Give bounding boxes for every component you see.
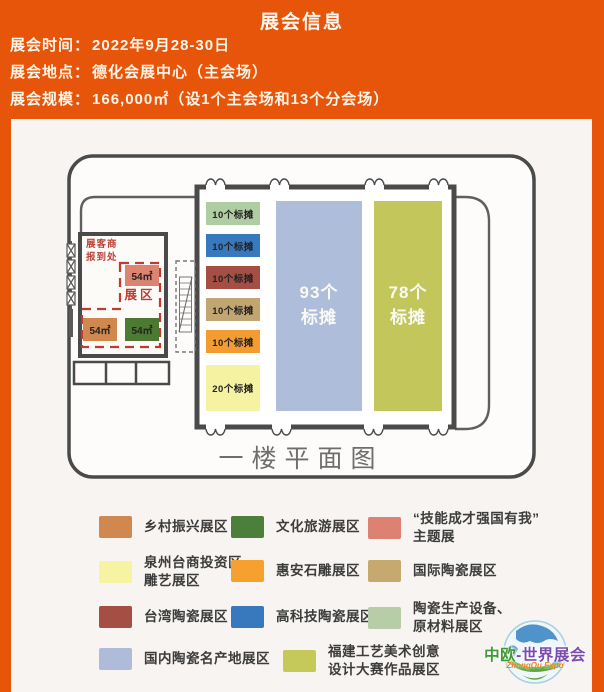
legend-label: 福建工艺美术创意 设计大赛作品展区: [328, 643, 440, 678]
legend-item: 乡村振兴展区: [99, 516, 228, 538]
legend-swatch: [99, 648, 132, 670]
info-value: 2022年9月28-30日: [92, 37, 230, 54]
legend-item: 高科技陶瓷展区: [231, 606, 374, 628]
booth-label: 10个标摊: [212, 207, 254, 221]
legend-label: 泉州台商投资区 雕艺展区: [144, 554, 242, 589]
legend-item: 惠安石雕展区: [231, 560, 360, 582]
legend-item: 福建工艺美术创意 设计大赛作品展区: [283, 643, 440, 678]
legend-item: 国际陶瓷展区: [368, 560, 497, 582]
hall-block-93: 93个 标摊: [276, 201, 362, 411]
legend-swatch: [231, 516, 264, 538]
info-row-time: 展会时间：2022年9月28-30日: [10, 34, 230, 55]
hall-label: 78个 标摊: [389, 281, 428, 330]
info-row-scale: 展会规模：166,000㎡（设1个主会场和13个分会场）: [10, 88, 389, 109]
legend-label: 惠安石雕展区: [276, 562, 360, 580]
floor-caption: 一楼平面图: [161, 439, 441, 475]
area-block-54: 54㎡: [125, 318, 159, 341]
legend-label: 高科技陶瓷展区: [276, 608, 374, 626]
booth-block: 20个标摊: [206, 365, 260, 411]
booth-label: 10个标摊: [212, 303, 254, 317]
content-panel: 展客商 报到处 54㎡ 展区 54㎡ 54㎡ 10个标摊 10个标摊 10个标摊…: [11, 119, 592, 692]
legend-swatch: [99, 606, 132, 628]
info-value: 德化会展中心（主会场）: [92, 64, 268, 81]
info-label: 展会地点：: [10, 64, 90, 81]
expo-logo: 中欧-世界展会 ZhongOu Expo: [469, 617, 601, 689]
area-label: 54㎡: [131, 268, 152, 283]
booth-block: 10个标摊: [206, 234, 260, 257]
area-label: 54㎡: [89, 322, 110, 337]
legend-label: 国内陶瓷名产地展区: [144, 650, 270, 668]
booth-block: 10个标摊: [206, 266, 260, 289]
legend-label: “技能成才强国有我” 主题展: [413, 510, 540, 545]
booth-label: 10个标摊: [212, 271, 254, 285]
legend-label: 文化旅游展区: [276, 518, 360, 536]
legend-swatch: [368, 560, 401, 582]
legend-swatch: [368, 607, 401, 629]
legend-swatch: [99, 516, 132, 538]
legend-item: 台湾陶瓷展区: [99, 606, 228, 628]
legend-swatch: [283, 650, 316, 672]
zone-label: 展区: [118, 284, 162, 303]
info-label: 展会时间：: [10, 37, 90, 54]
logo-subtitle: ZhongOu Expo: [469, 661, 601, 670]
booth-block: 10个标摊: [206, 298, 260, 321]
hall-block-78: 78个 标摊: [374, 201, 442, 411]
legend-label: 国际陶瓷展区: [413, 562, 497, 580]
registration-desk-label: 展客商 报到处: [86, 239, 118, 265]
info-label: 展会规模：: [10, 91, 90, 108]
legend-swatch: [368, 517, 401, 539]
legend-item: 泉州台商投资区 雕艺展区: [99, 554, 242, 589]
legend-swatch: [231, 606, 264, 628]
booth-label: 10个标摊: [212, 239, 254, 253]
booth-label: 10个标摊: [212, 335, 254, 349]
legend-swatch: [231, 560, 264, 582]
area-label: 54㎡: [131, 322, 152, 337]
area-block-54: 54㎡: [83, 318, 117, 341]
legend-item: 国内陶瓷名产地展区: [99, 648, 270, 670]
legend-label: 乡村振兴展区: [144, 518, 228, 536]
page-title: 展会信息: [0, 7, 604, 34]
hall-label: 93个 标摊: [300, 281, 339, 330]
info-value: 166,000㎡（设1个主会场和13个分会场）: [92, 91, 389, 108]
booth-label: 20个标摊: [212, 381, 254, 395]
info-row-location: 展会地点：德化会展中心（主会场）: [10, 61, 268, 82]
booth-block: 10个标摊: [206, 202, 260, 225]
legend-item: 文化旅游展区: [231, 516, 360, 538]
booth-block: 10个标摊: [206, 330, 260, 353]
legend-label: 台湾陶瓷展区: [144, 608, 228, 626]
legend-item: “技能成才强国有我” 主题展: [368, 510, 540, 545]
area-block-54: 54㎡: [125, 265, 159, 286]
exhibition-info-page: { "header": { "title": "展会信息", "info": […: [0, 0, 604, 692]
legend-swatch: [99, 561, 132, 583]
